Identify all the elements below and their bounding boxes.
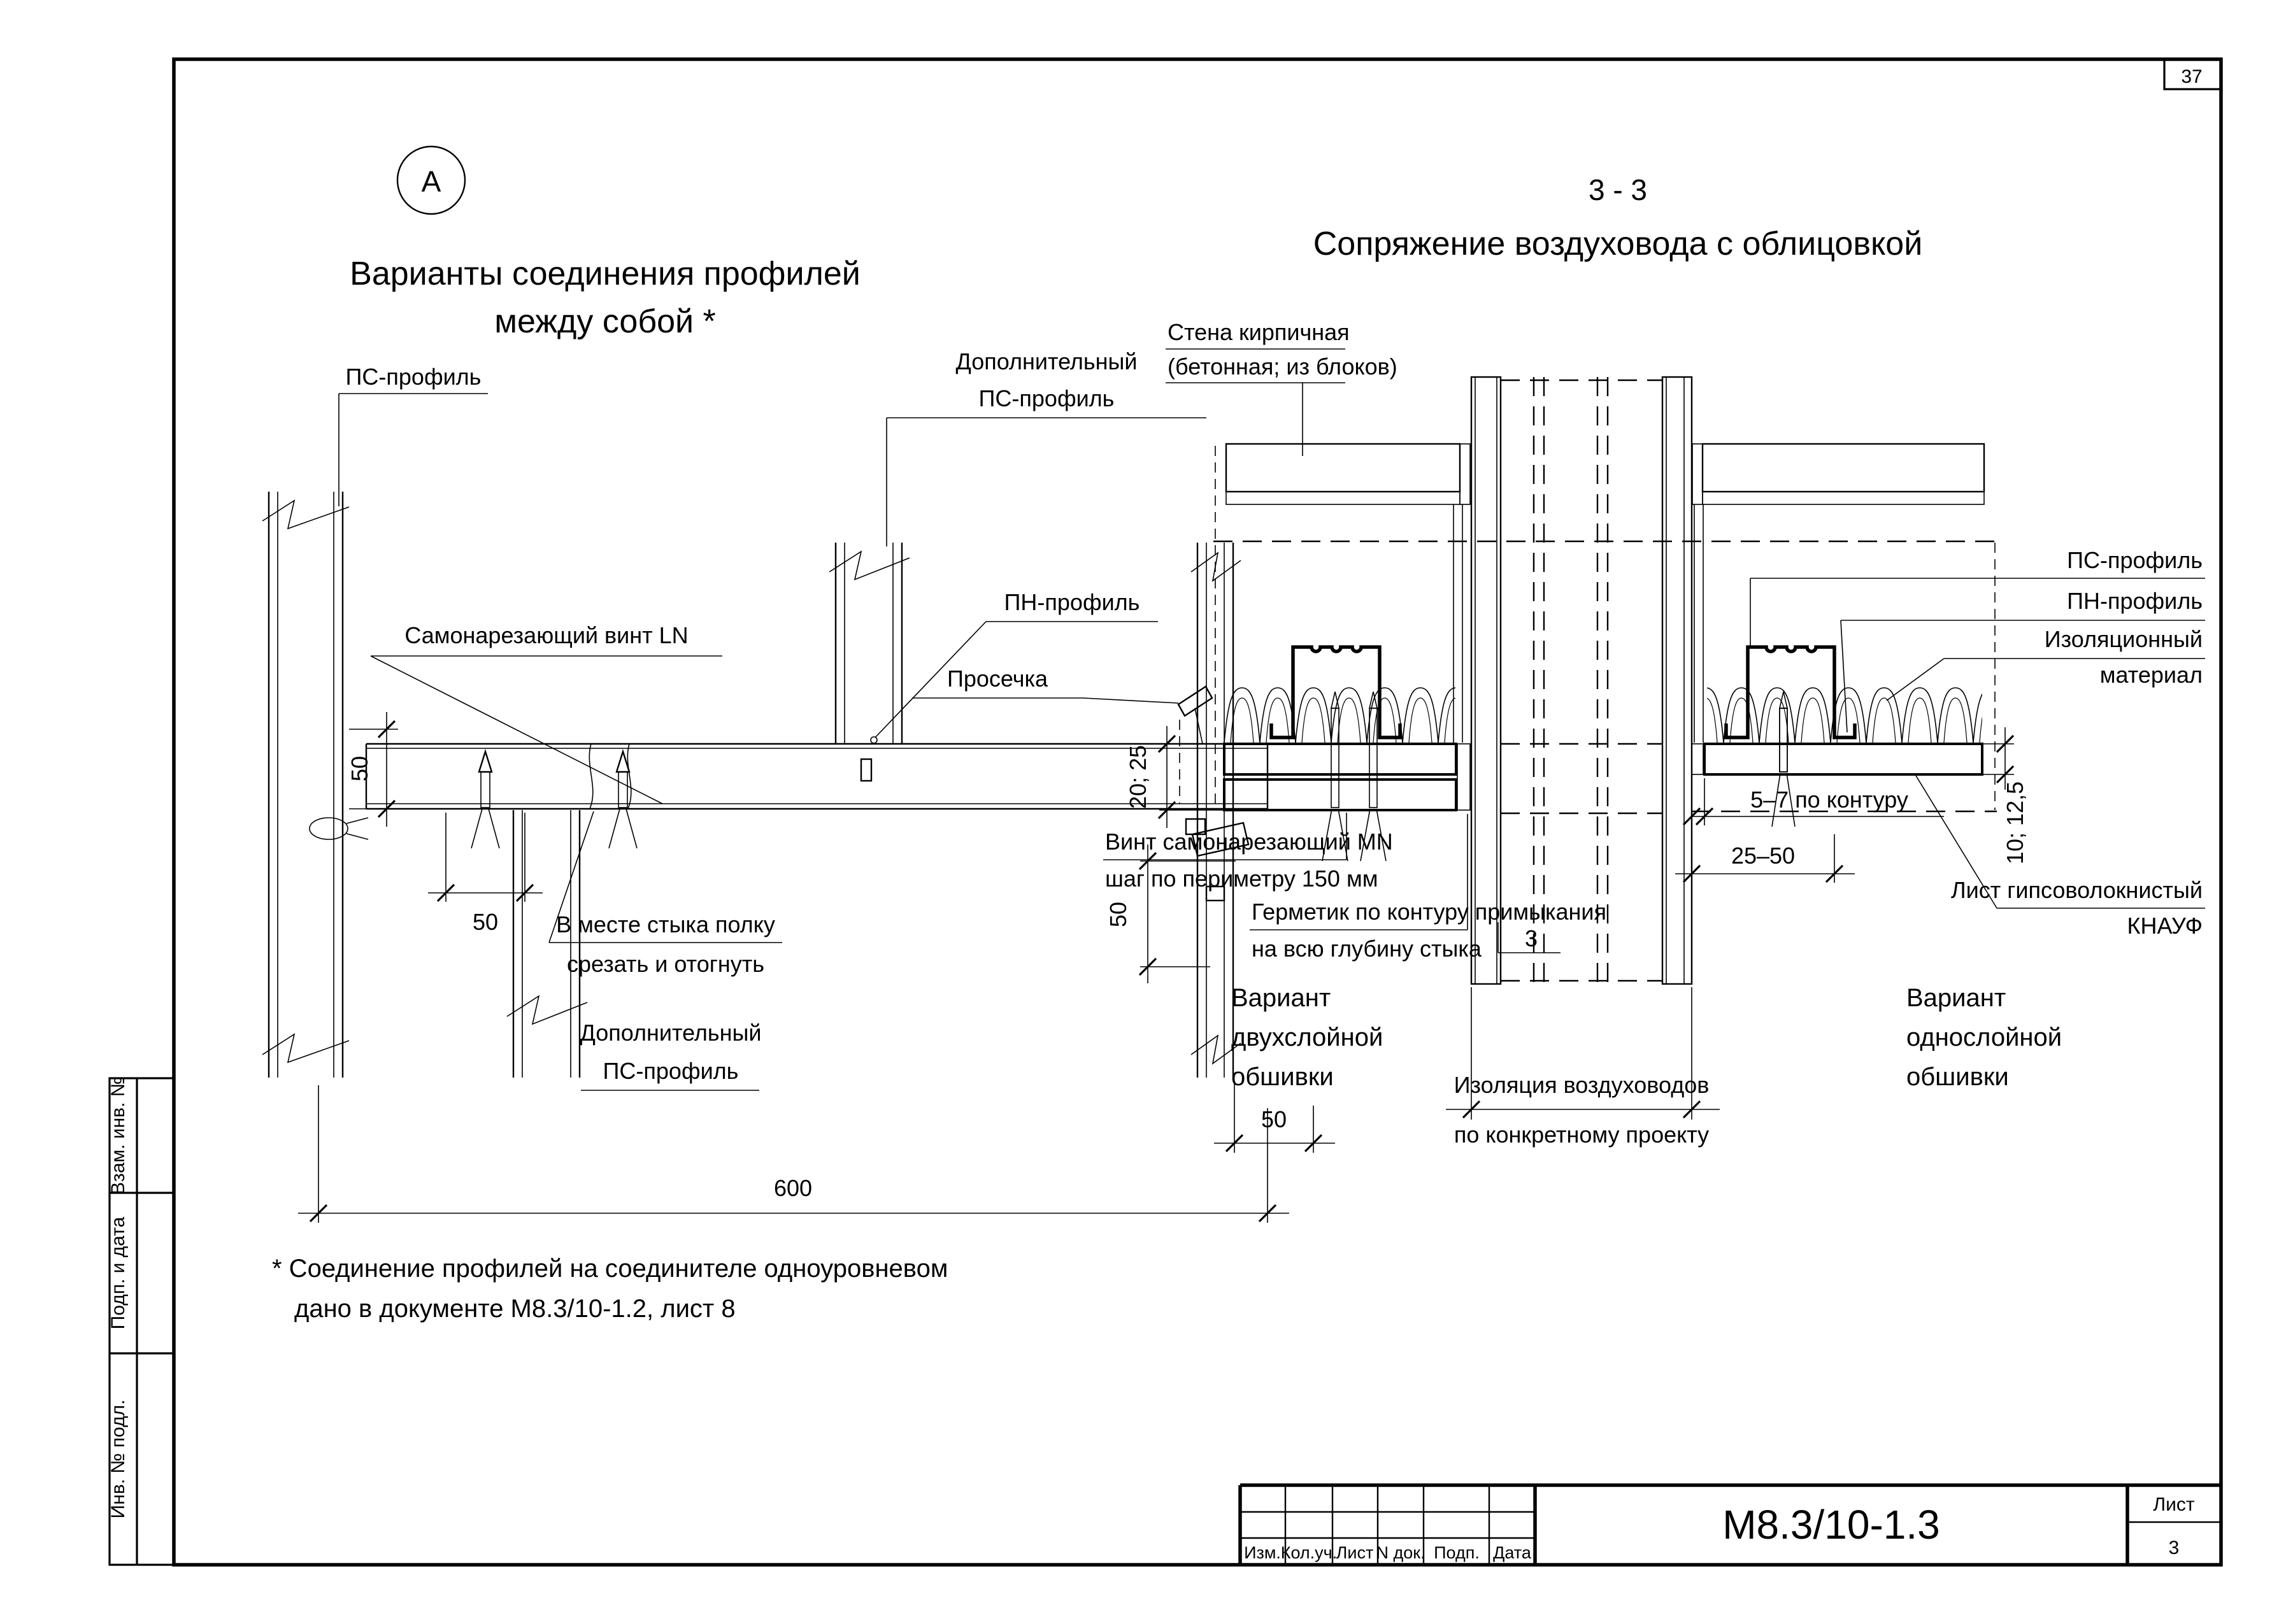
- screw-ln-side: [310, 818, 368, 839]
- wall-sealant-left: [1460, 444, 1470, 504]
- label-dop-bottom-1: Дополнительный: [580, 1020, 761, 1046]
- footnote-line2: дано в документе М8.3/10-1.2, лист 8: [294, 1295, 736, 1323]
- stamp-col-list: Лист: [1336, 1543, 1374, 1562]
- dim-50-left: 50: [346, 756, 373, 781]
- label-ps-right: ПС-профиль: [2067, 547, 2203, 573]
- duct-insulation-note: Изоляция воздуховодов по конкретному про…: [1446, 987, 1720, 1148]
- label-variant2-3: обшивки: [1231, 1063, 1334, 1091]
- label-variant1-1: Вариант: [1906, 984, 2006, 1012]
- dim-57-text: 5–7 по контуру: [1750, 787, 1908, 813]
- label-insul-2: материал: [2100, 662, 2203, 688]
- label-screw-ln: Самонарезающий винт LN: [404, 622, 688, 648]
- callout-3-text: 3: [1525, 925, 1538, 951]
- variant-one-layer: Вариант однослойной обшивки: [1906, 984, 2062, 1091]
- screw-ln-1: [469, 751, 502, 848]
- label-cut-2: срезать и отогнуть: [567, 951, 764, 977]
- screw-ln-2: [606, 751, 639, 848]
- label-variant2-1: Вариант: [1231, 984, 1331, 1012]
- label-dop-top-2: ПС-профиль: [979, 385, 1115, 411]
- wall-band-right: [1703, 444, 1984, 504]
- sealant-strip-left: [1457, 744, 1470, 810]
- dim-1012-text: 10; 12,5: [2002, 781, 2028, 864]
- sheet-number: 3: [2169, 1537, 2180, 1558]
- sidebar-label-inv: Инв. № подл.: [108, 1400, 129, 1519]
- dim-2550-text: 25–50: [1731, 843, 1795, 869]
- sidebar-stamp: Взам. инв. № Подп. и дата Инв. № подл.: [108, 1076, 174, 1565]
- label-insul-1: Изоляционный: [2045, 626, 2203, 652]
- stamp-col-ndok: N док.: [1376, 1543, 1425, 1562]
- duct-wall-right: [1662, 377, 1692, 984]
- label-pn-right: ПН-профиль: [2067, 588, 2203, 614]
- stamp-col-izm: Изм.: [1244, 1543, 1281, 1562]
- stamp-col-podp: Подп.: [1434, 1543, 1480, 1562]
- label-sealant-2: на всю глубину стыка: [1252, 936, 1482, 962]
- stamp-col-koluch: Кол.уч.: [1281, 1543, 1337, 1562]
- insulation-left: [1224, 662, 1455, 743]
- section-mark: 3 - 3: [1589, 173, 1647, 206]
- section-title: Сопряжение воздуховода с облицовкой: [1313, 225, 1923, 262]
- stamp-col-data: Дата: [1493, 1543, 1532, 1562]
- label-dop-bottom-2: ПС-профиль: [603, 1058, 739, 1084]
- label-pn: ПН-профиль: [1004, 589, 1140, 615]
- label-wall-1: Стена кирпичная: [1168, 319, 1350, 345]
- dim-1012: 10; 12,5: [1980, 727, 2028, 864]
- footnote-line1: * Соединение профилей на соединителе одн…: [272, 1255, 948, 1283]
- gvl-board-right: [1704, 744, 1982, 774]
- dim-57: 5–7 по контуру: [1683, 778, 1944, 825]
- gvl-board-left-2: [1224, 780, 1456, 810]
- detail-a-labels: ПС-профиль Дополнительный ПС-профиль Сам…: [339, 348, 1206, 1090]
- sidebar-label-vzam: Взам. инв. №: [108, 1076, 129, 1195]
- duct-wall-left: [1471, 377, 1501, 984]
- document-number: М8.3/10-1.3: [1722, 1502, 1940, 1548]
- dim-50-mid: 50: [473, 909, 498, 935]
- dim-50-bottom: 50: [1261, 1106, 1287, 1132]
- dim-2025-text: 20; 25: [1125, 745, 1151, 809]
- variant-two-layer: Вариант двухслойной обшивки: [1231, 984, 1383, 1091]
- label-screw-mn-2: шаг по периметру 150 мм: [1105, 865, 1378, 892]
- label-wall-2: (бетонная; из блоков): [1168, 353, 1397, 380]
- dim-600: 600: [774, 1175, 812, 1201]
- label-duct-ins-2: по конкретному проекту: [1454, 1122, 1709, 1148]
- title-block: Изм. Кол.уч. Лист N док. Подп. Дата М8.3…: [1240, 1485, 2221, 1565]
- dim-2025: 20; 25: [1125, 726, 1227, 828]
- label-duct-ins-1: Изоляция воздуховодов: [1454, 1072, 1710, 1098]
- sheet-label: Лист: [2153, 1494, 2194, 1515]
- label-variant1-3: обшивки: [1906, 1063, 2009, 1091]
- callout-3: 3: [1498, 922, 1561, 953]
- label-ps-top: ПС-профиль: [346, 364, 482, 390]
- wall-band-left: [1226, 444, 1460, 504]
- dim-2550: 25–50: [1675, 834, 1855, 883]
- label-cut-1: В месте стыка полку: [556, 911, 775, 937]
- detail-a-title-line2: между собой *: [494, 303, 716, 340]
- label-variant1-2: однослойной: [1906, 1023, 2062, 1051]
- drawing-canvas: 37 Взам. инв. № Подп. и дата Инв. № подл…: [0, 0, 2293, 1624]
- sealant-strip-right: [1692, 744, 1703, 774]
- label-sealant-1: Герметик по контуру примыкания: [1252, 899, 1606, 925]
- detail-mark-letter: А: [422, 165, 441, 198]
- sidebar-label-podp: Подп. и дата: [108, 1216, 129, 1329]
- label-variant2-2: двухслойной: [1231, 1023, 1383, 1051]
- page-number: 37: [2181, 66, 2202, 87]
- label-dop-top-1: Дополнительный: [955, 348, 1137, 374]
- wall-sealant-right: [1692, 444, 1703, 504]
- label-prosechka: Просечка: [947, 666, 1048, 692]
- stud-bottom-additional: [507, 810, 587, 1078]
- drawing-sheet: 37 Взам. инв. № Подп. и дата Инв. № подл…: [0, 0, 2293, 1624]
- stud-left: [262, 492, 349, 1078]
- detail-a-title-line1: Варианты соединения профилей: [350, 255, 861, 292]
- label-screw-mn-1: Винт самонарезающий MN: [1105, 829, 1393, 855]
- label-gvl-1: Лист гипсоволокнистый: [1951, 877, 2203, 903]
- insulation-right: [1707, 662, 1982, 743]
- section-3-3: 3 - 3 Сопряжение воздуховода с облицовко…: [1103, 173, 2205, 1148]
- dim-50-right: 50: [1105, 902, 1131, 927]
- label-gvl-2: КНАУФ: [2127, 913, 2203, 939]
